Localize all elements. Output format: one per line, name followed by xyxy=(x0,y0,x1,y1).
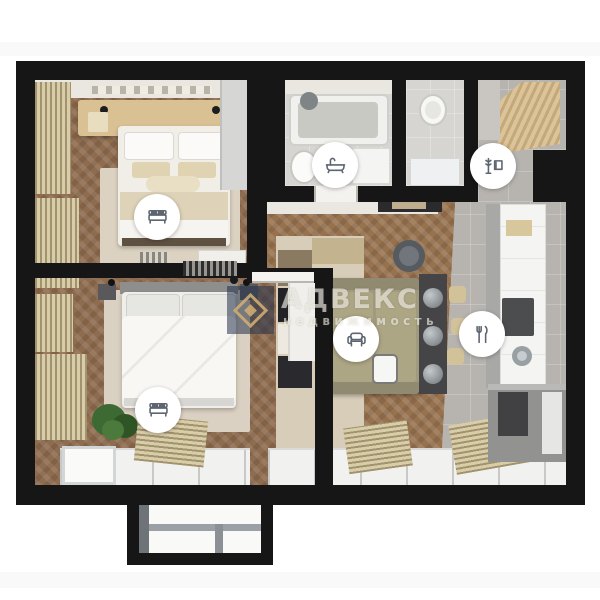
sofa-armrest xyxy=(329,382,419,394)
wall-outer-bottom xyxy=(16,485,585,505)
balcony-wall-bottom xyxy=(127,553,273,565)
floorplan-image: АДВЕКС недвижимость xyxy=(0,0,600,600)
bed-icon xyxy=(134,194,180,240)
balcony-frame-post xyxy=(139,504,149,553)
balcony-door xyxy=(62,446,116,485)
bedroom1-wall-lamp xyxy=(212,106,220,114)
stool xyxy=(449,286,466,303)
bedroom1-bolster xyxy=(146,176,200,192)
wall-hall-stub xyxy=(533,150,566,202)
bedroom2-duvet xyxy=(122,316,236,402)
wall-outer-left xyxy=(16,61,35,505)
armchair-icon xyxy=(333,316,379,362)
bedroom1-doormat xyxy=(183,261,237,276)
sideboard-shelf xyxy=(542,392,562,454)
wall-bedroom1-right xyxy=(247,61,267,283)
bedroom2-door-panel xyxy=(252,272,314,283)
bed-icon xyxy=(135,387,181,433)
bedroom2-curtain xyxy=(35,294,73,352)
bedroom1-wardrobe xyxy=(220,80,247,190)
bedroom1-wall-decor xyxy=(92,86,212,94)
bedroom1-nightstand xyxy=(88,112,108,132)
plant-leaves xyxy=(102,420,124,440)
bedroom2-nightstand xyxy=(98,284,116,300)
bedroom2-nightstand xyxy=(240,284,258,300)
wall-outer-top xyxy=(16,61,585,80)
hall-wall-shading xyxy=(478,80,500,140)
door-hinge xyxy=(230,276,238,284)
console-lamp xyxy=(423,326,443,346)
stool xyxy=(447,348,464,365)
coat-rack-icon xyxy=(470,143,516,189)
bathtub-icon xyxy=(312,142,358,188)
bedroom2-curtain xyxy=(35,354,87,440)
console-lamp xyxy=(423,288,443,308)
wall-bedroom2-living xyxy=(315,277,333,485)
wall-bathroom-south xyxy=(285,186,314,202)
wall-bathroom-wc xyxy=(392,80,406,186)
bedroom1-curtain xyxy=(35,82,71,194)
bedroom1-pillow xyxy=(124,132,174,160)
wall-bathroom-left xyxy=(267,61,285,202)
artifact-band xyxy=(0,42,600,56)
sofa-armrest xyxy=(329,278,419,290)
bathroom-mirror xyxy=(300,92,318,110)
balcony-beam-horizontal xyxy=(139,524,261,531)
kitchen-cabinet-side xyxy=(486,204,500,388)
balcony-beam-vertical xyxy=(215,524,223,553)
toilet-seat xyxy=(425,101,441,119)
bedroom1-bed-base xyxy=(122,238,226,246)
armchair-small xyxy=(372,354,398,384)
bedroom2-wall-lamp xyxy=(108,279,115,286)
wall-outer-right xyxy=(566,61,585,505)
cutlery-icon xyxy=(459,311,505,357)
kitchen-small-appliance xyxy=(506,220,532,236)
kitchen-sink-basin xyxy=(517,351,527,361)
cooktop xyxy=(502,298,534,336)
wall-wc-south xyxy=(358,186,478,202)
rug-pattern-block xyxy=(312,238,364,264)
living-curtain xyxy=(343,420,413,474)
sideboard-books xyxy=(498,392,528,436)
side-table-top xyxy=(399,246,419,266)
bathroom-door-opening xyxy=(314,186,358,202)
console-lamp xyxy=(423,364,443,384)
wc-door xyxy=(410,158,460,186)
bedroom2-wardrobe xyxy=(288,283,315,361)
artifact-band xyxy=(0,572,600,588)
bathroom-wallface xyxy=(285,80,392,94)
hall-passage xyxy=(478,186,533,202)
